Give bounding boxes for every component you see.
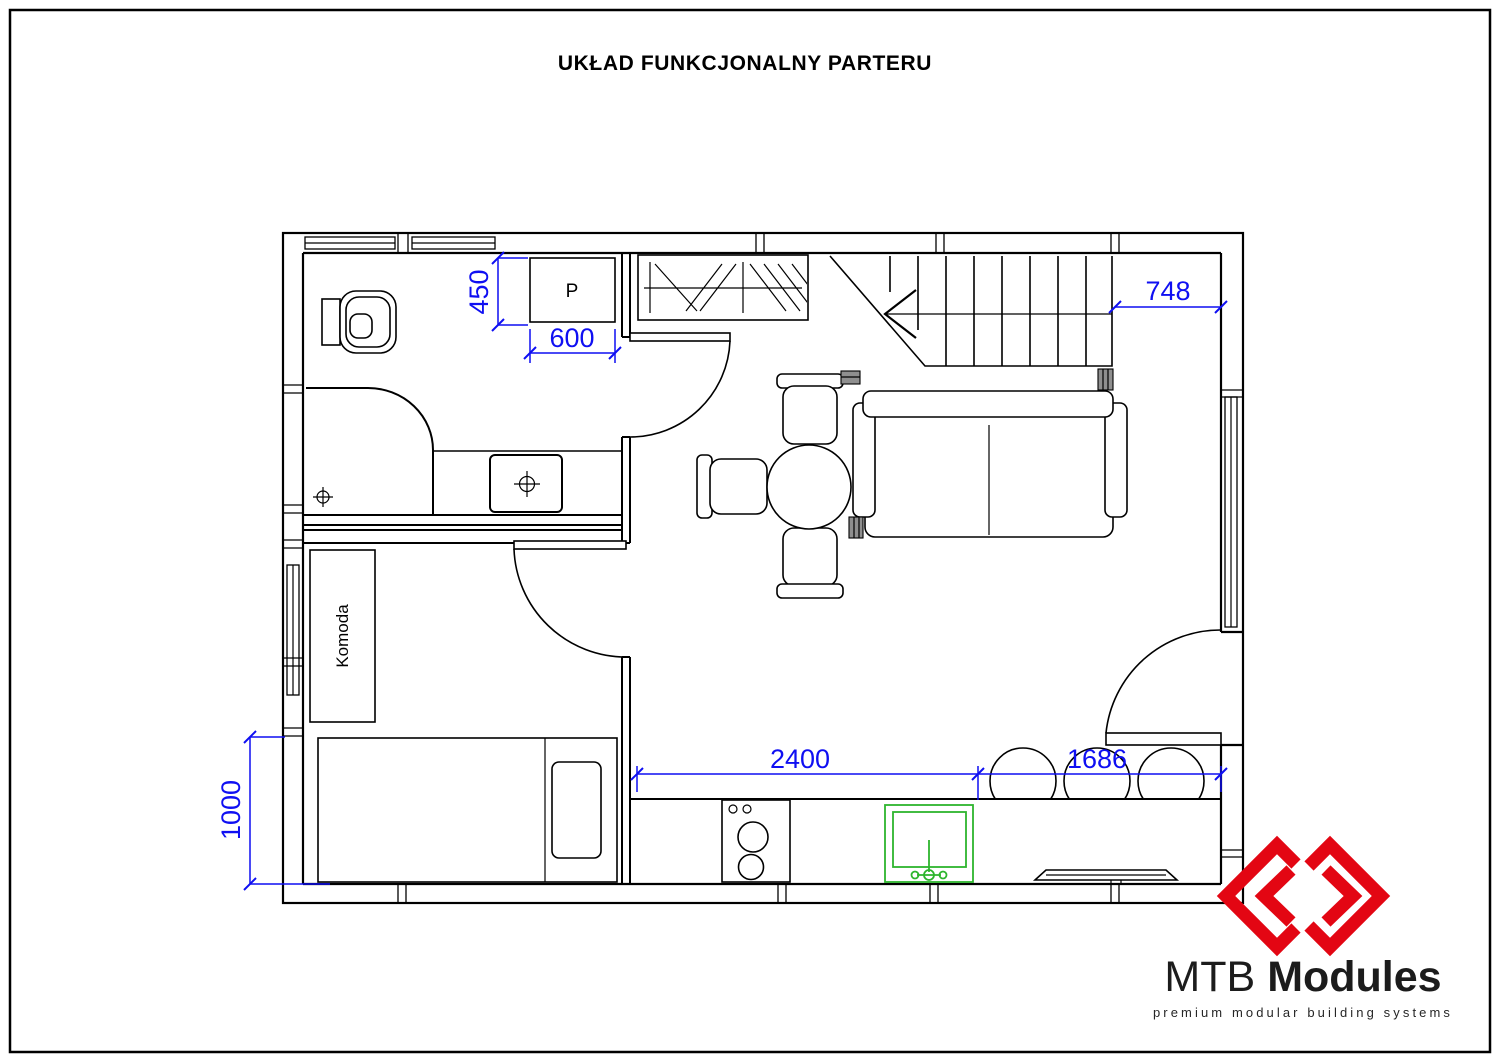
dining-chair-left [697, 455, 767, 518]
kitchen-sink [885, 805, 973, 882]
dining-table [767, 445, 851, 529]
dining-chair-bottom [777, 528, 843, 598]
brand-name-suffix: Modules [1267, 953, 1441, 1001]
dimension-600: 600 [524, 323, 621, 363]
dimension-2400-label: 2400 [770, 744, 830, 774]
brand-tagline: premium modular building systems [1153, 1005, 1453, 1020]
brand-name-prefix: MTB [1164, 953, 1255, 1001]
bathroom-door [630, 333, 730, 437]
dimension-1000: 1000 [216, 731, 330, 890]
wall-box-icon [1098, 369, 1113, 390]
dining-set [697, 374, 851, 598]
wall-box-icon [849, 517, 863, 538]
washing-machine: P [530, 258, 615, 322]
window-top-left [305, 237, 395, 249]
bed [318, 738, 617, 882]
drawing-title: UKŁAD FUNKCJONALNY PARTERU [558, 52, 932, 75]
drawing-sheet: UKŁAD FUNKCJONALNY PARTERU [0, 0, 1500, 1062]
toilet [322, 291, 396, 353]
brand-name: MTBModules [1164, 953, 1441, 1001]
mtb-logo-icon [1226, 845, 1381, 947]
wall-box-icon [841, 371, 860, 384]
dimension-600-label: 600 [549, 323, 594, 353]
dimension-450: 450 [464, 252, 528, 331]
kitchen [630, 748, 1221, 884]
brand-logo: MTBModules premium modular building syst… [1153, 845, 1453, 1020]
stairs [830, 256, 1112, 366]
dresser: Komoda [310, 550, 375, 722]
dining-chair-top [777, 374, 843, 444]
faucet-icon [912, 840, 947, 880]
dimension-1000-label: 1000 [216, 780, 246, 840]
bathroom-sink-cabinet [490, 455, 562, 512]
entry-door [1106, 630, 1221, 745]
dimension-450-label: 450 [464, 269, 494, 314]
shower [306, 388, 433, 515]
cooktop [722, 800, 790, 882]
washing-machine-label: P [566, 281, 579, 302]
window-left [287, 565, 299, 695]
shower-drain-icon [313, 487, 333, 507]
shelf [1035, 870, 1177, 884]
bedroom-door [514, 541, 626, 657]
window-top-center [412, 237, 495, 249]
floor-plan-canvas: UKŁAD FUNKCJONALNY PARTERU [0, 0, 1500, 1062]
dimension-2400-1686: 2400 1686 [631, 744, 1227, 800]
window-right [1225, 397, 1237, 627]
dresser-label: Komoda [333, 604, 352, 668]
wardrobe [638, 255, 828, 320]
dimension-748-label: 748 [1145, 276, 1190, 306]
bedroom: Komoda [310, 550, 617, 882]
dimension-1686-label: 1686 [1067, 744, 1127, 774]
dimension-748: 748 [1109, 276, 1227, 313]
sofa [853, 391, 1127, 537]
